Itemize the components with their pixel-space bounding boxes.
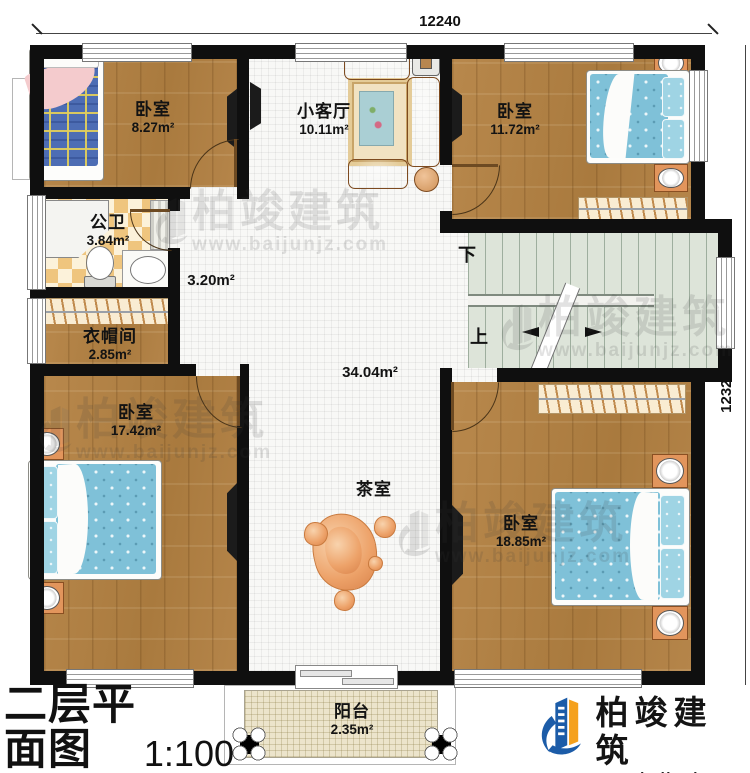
room-label-bedroom-br: 卧室 18.85m² xyxy=(471,514,571,549)
wall xyxy=(190,45,295,59)
window xyxy=(716,257,735,349)
room-label-hall: 34.04m² xyxy=(320,364,420,381)
room-label-bedroom-tl: 卧室 8.27m² xyxy=(103,100,203,135)
wall xyxy=(30,45,44,195)
brand-name: 柏竣建筑 xyxy=(596,694,750,770)
wall xyxy=(396,671,454,685)
brand-logo[interactable]: 柏竣建筑 www.baijunjz.com xyxy=(536,694,750,773)
bedroom-br-closet xyxy=(538,384,686,414)
title-block: 二层平面图 1:100 本层建筑面积：132.54m²层高：3.3m xyxy=(4,683,234,773)
tea-stone xyxy=(334,590,355,611)
column xyxy=(424,727,458,761)
stair-up-label: 上 xyxy=(470,323,488,349)
toilet-icon[interactable] xyxy=(86,246,114,280)
brand-logo-icon xyxy=(536,694,588,758)
cloakroom-wardrobe xyxy=(44,298,170,326)
sofa-right xyxy=(407,77,440,167)
tv-icon xyxy=(250,82,261,130)
wall xyxy=(691,160,705,222)
wall xyxy=(405,45,504,59)
wall xyxy=(440,368,452,382)
right-dimension-line xyxy=(745,45,746,685)
window xyxy=(27,298,46,364)
top-dimension-label: 12240 xyxy=(405,13,475,30)
top-dimension-line xyxy=(36,33,712,34)
window xyxy=(295,43,407,62)
column xyxy=(232,727,266,761)
nightstand xyxy=(652,606,688,640)
window xyxy=(504,43,634,62)
door-leaf xyxy=(130,209,170,212)
window xyxy=(689,70,708,162)
stair-down-label: 下 xyxy=(458,241,476,267)
wall xyxy=(30,287,180,298)
wall xyxy=(440,211,452,219)
plan-scale: 1:100 xyxy=(144,734,234,773)
room-label-tearoom: 茶室 xyxy=(324,480,424,500)
bedroom-tr-closet xyxy=(578,197,688,221)
nightstand xyxy=(652,454,688,488)
tea-stone xyxy=(374,516,396,538)
wall xyxy=(718,233,732,257)
tea-stone xyxy=(304,522,328,546)
wall xyxy=(497,368,732,382)
bed-sheet-fold xyxy=(58,463,88,575)
bed-sheet-fold xyxy=(630,491,658,601)
bed-pillow xyxy=(662,77,685,117)
tv-icon xyxy=(452,88,462,142)
wall xyxy=(30,364,196,376)
wall xyxy=(640,671,705,685)
window xyxy=(82,43,192,62)
tv-icon xyxy=(452,505,463,585)
tea-stone xyxy=(368,556,383,571)
wall xyxy=(691,382,705,671)
room-label-cloakroom: 衣帽间 2.85m² xyxy=(60,327,160,362)
door-leaf xyxy=(234,139,237,187)
window xyxy=(27,195,46,290)
balcony-sliding-door[interactable] xyxy=(295,665,398,689)
door-leaf xyxy=(452,164,498,167)
room-label-bedroom-bl: 卧室 17.42m² xyxy=(86,403,186,438)
bed-pillow xyxy=(660,495,685,546)
window xyxy=(454,669,642,688)
wall xyxy=(44,187,190,199)
room-label-hallway: 3.20m² xyxy=(161,272,261,289)
room-label-living: 小客厅 10.11m² xyxy=(274,102,374,137)
page-title: 二层平面图 xyxy=(4,683,140,773)
floor-plan-canvas: 12240 12320 xyxy=(0,0,750,773)
door-leaf xyxy=(237,376,240,426)
door-leaf xyxy=(451,382,454,430)
ottoman xyxy=(414,167,439,192)
sofa-bottom xyxy=(348,159,408,189)
room-label-bedroom-tr: 卧室 11.72m² xyxy=(465,102,565,137)
wall xyxy=(30,362,44,685)
wall xyxy=(718,347,732,368)
bed-pillow xyxy=(660,548,685,599)
wall xyxy=(440,59,452,165)
wall xyxy=(240,364,249,376)
wall xyxy=(440,219,732,233)
nightstand xyxy=(654,164,688,192)
wall xyxy=(691,45,705,70)
bed-pillow xyxy=(662,119,685,159)
room-label-balcony: 阳台 2.35m² xyxy=(302,702,402,737)
room-label-bathroom: 公卫 3.84m² xyxy=(58,213,158,248)
